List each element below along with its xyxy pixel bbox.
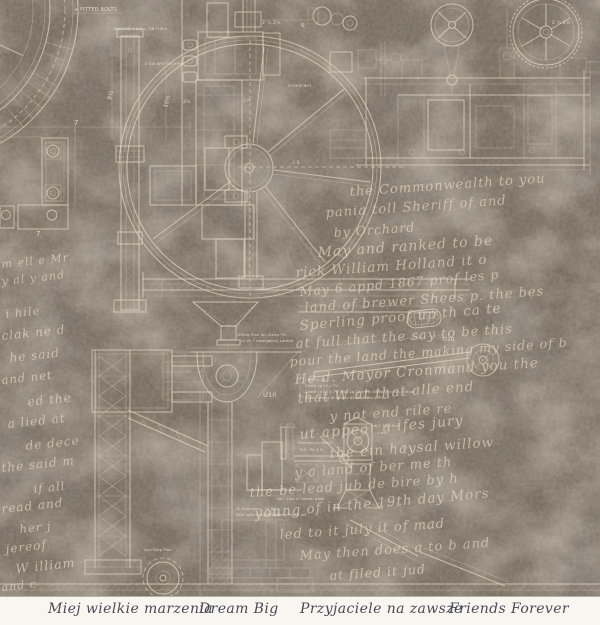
- blueprint-collage: + FITTED BOLTS WASHER 4 DIA x 7/8 THICK …: [0, 0, 600, 596]
- footer-strip: Miej wielkie marzenia Dream Big Przyjaci…: [0, 596, 600, 625]
- footer-phrase-polish-friends: Przyjaciele na zawsze: [300, 601, 463, 617]
- footer-phrase-friends-forever: Friends Forever: [449, 601, 569, 617]
- footer-phrase-dream-big: Dream Big: [199, 601, 279, 617]
- footer-phrase-polish-dream: Miej wielkie marzenia: [48, 601, 213, 617]
- scrapbook-paper: + FITTED BOLTS WASHER 4 DIA x 7/8 THICK …: [0, 0, 600, 625]
- grain-overlay: [0, 0, 600, 596]
